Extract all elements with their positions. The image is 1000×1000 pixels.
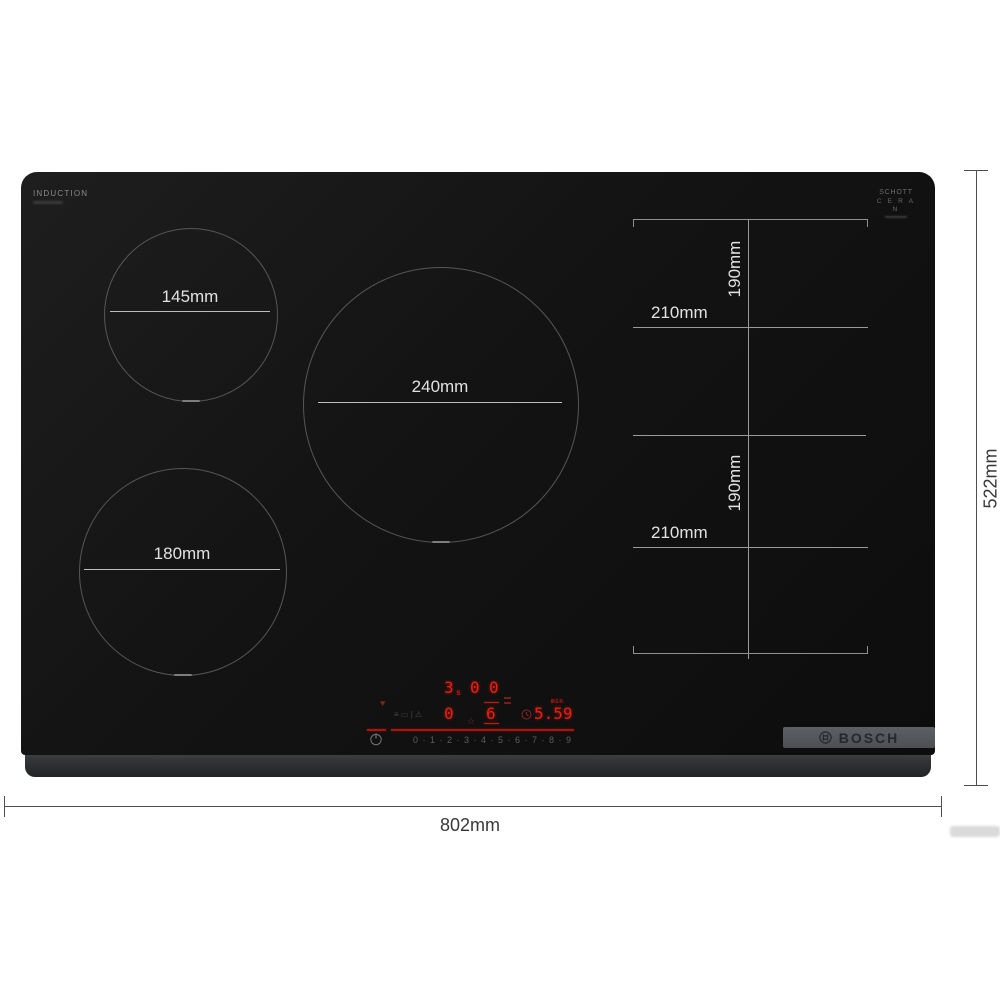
flexzone-bottom-height-label: 190mm <box>725 448 745 518</box>
flexzone-top-width-line <box>633 327 868 328</box>
schott-line: SCHOTT <box>872 189 920 198</box>
zone-145-circle <box>104 228 278 402</box>
bosch-armature-icon <box>819 731 832 744</box>
watermark <box>950 826 1000 837</box>
height-dimension-cap-top <box>964 170 988 171</box>
slider-line-main <box>391 729 574 731</box>
bosch-logo-strip: BOSCH <box>783 727 935 748</box>
product-dimension-diagram: INDUCTION SCHOTT C E R A N 145mm 240mm 1… <box>0 0 1000 1000</box>
flexzone-top-width-label: 210mm <box>651 303 761 323</box>
power-button-icon[interactable] <box>369 732 383 746</box>
zone-145-diameter-line <box>110 311 270 312</box>
flexzone-bottom-width-label: 210mm <box>651 523 761 543</box>
width-dimension-cap-left <box>4 796 5 817</box>
power-level-display-2[interactable]: 0 <box>470 680 480 696</box>
zone-240-circle <box>303 267 579 543</box>
zone-180-diameter-line <box>84 569 280 570</box>
menu-icon: ≡ <box>394 710 399 719</box>
zone-240-front-mark <box>432 541 450 543</box>
power-level-display-1[interactable]: 3 <box>444 680 454 696</box>
ventilation-indicator <box>504 697 511 707</box>
bridge-indicator-top <box>484 702 499 703</box>
zone-180-front-mark <box>174 674 192 676</box>
zone-180-label: 180mm <box>79 544 285 564</box>
width-dimension-cap-right <box>941 796 942 817</box>
height-dimension-cap-bottom <box>964 785 988 786</box>
flexzone-bottom-bracket <box>633 646 868 654</box>
warning-icon: ⚠ <box>415 710 422 719</box>
timer-clock-icon <box>521 709 532 720</box>
ceran-line: C E R A N <box>872 198 920 214</box>
timer-display[interactable]: 5.59 <box>534 706 573 722</box>
power-level-display-3[interactable]: 0 <box>489 680 499 696</box>
pan-icon: ▭ <box>401 710 409 719</box>
residual-heat-icon: ♥ <box>380 698 385 708</box>
flexzone-top-bracket <box>633 219 868 227</box>
zone-240-label: 240mm <box>303 377 577 397</box>
flexzone-top-height-label: 190mm <box>725 234 745 304</box>
power-level-display-4[interactable]: 0 <box>444 706 454 722</box>
width-dimension-line <box>4 806 941 807</box>
flexzone-center-line <box>748 219 749 659</box>
flexzone-divider-line <box>633 435 866 436</box>
bridge-indicator-bottom <box>484 723 499 724</box>
model-number-print <box>33 201 63 204</box>
zone-240-diameter-line <box>318 402 562 403</box>
height-dimension-line <box>976 170 977 786</box>
power-slider-scale[interactable]: 0 · 1 · 2 · 3 · 4 · 5 · 6 · 7 · 8 · 9 <box>413 735 572 745</box>
zone-145-front-mark <box>182 400 200 402</box>
bosch-logo-text: BOSCH <box>839 730 900 746</box>
induction-print-label: INDUCTION <box>33 189 88 198</box>
zone-145-label: 145mm <box>104 287 276 307</box>
flexzone-bottom-width-line <box>633 547 868 548</box>
power-level-display-5[interactable]: 6 <box>486 706 496 722</box>
zone-180-circle <box>79 468 287 676</box>
power-level-display-1-sub: s <box>456 689 461 697</box>
height-dimension-label: 522mm <box>981 444 1000 514</box>
schott-ceran-print: SCHOTT C E R A N <box>872 189 920 218</box>
status-bar-icon: ≡ ▭ | ⚠ <box>394 711 422 719</box>
star-function-icon[interactable]: ☆ <box>467 716 475 727</box>
brand-subtext-print <box>885 216 907 218</box>
slider-line-left <box>367 729 386 731</box>
width-dimension-label: 802mm <box>380 815 560 836</box>
divider-icon: | <box>411 710 413 719</box>
